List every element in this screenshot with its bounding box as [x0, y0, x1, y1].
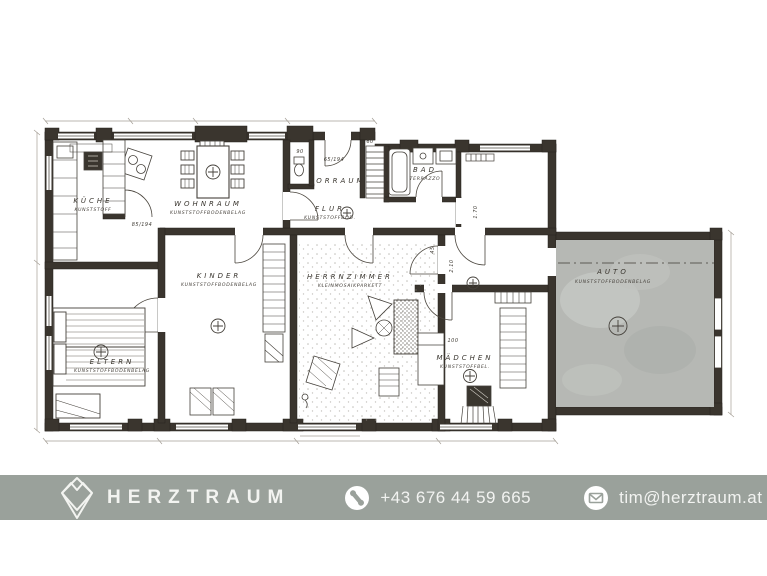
- room-label-vorraum: VORRAUM: [309, 177, 366, 185]
- room-label-kinder: KINDER: [197, 272, 242, 280]
- brand-name: HERZTRAUM: [107, 487, 290, 509]
- curtain: [461, 406, 496, 424]
- wc-fixtures: [294, 157, 304, 176]
- brand: HERZTRAUM: [60, 476, 290, 520]
- dim-room-height: 1.70: [473, 205, 479, 218]
- wardrobe: [263, 244, 285, 332]
- radiator: [379, 368, 399, 396]
- room-material-kinder: KUNSTSTOFFBODENBELAG: [181, 282, 257, 288]
- kinder-furniture: [190, 244, 285, 415]
- fireplace: [394, 300, 418, 354]
- room-label-wohnraum: WOHNRAUM: [174, 200, 242, 208]
- email-icon: [583, 485, 609, 511]
- phone-number: +43 676 44 59 665: [380, 488, 531, 508]
- ceiling-light-icon: [94, 345, 108, 359]
- phone-icon: [344, 485, 370, 511]
- footer-bar: HERZTRAUM +43 676 44 59 665 tim@herztrau…: [0, 475, 767, 520]
- room-material-maedchen: KUNSTSTOFFBEL.: [440, 364, 490, 370]
- room-label-eltern: ELTERN: [90, 358, 135, 366]
- washer: [436, 148, 456, 164]
- dining-group: [181, 141, 244, 198]
- email-contact: tim@herztraum.at: [583, 485, 762, 511]
- room-material-herrnzimmer: KLEINMOSAIKPARKETT: [318, 283, 383, 289]
- email-address: tim@herztraum.at: [619, 488, 762, 508]
- room-material-bad: TERRAZZO: [410, 176, 441, 182]
- dim-corridor-height: 2.10: [449, 259, 455, 272]
- dim-maedchen-width: 100: [447, 338, 458, 344]
- room-material-auto: KUNSTSTOFFBODENBELAG: [575, 279, 651, 285]
- brand-logo-diamond-icon: [60, 476, 94, 520]
- room-label-auto: AUTO: [596, 268, 629, 276]
- stairs: [366, 146, 384, 198]
- room-material-eltern: KUNSTSTOFFBODENBELAG: [74, 368, 150, 374]
- room-material-kueche: KUNSTSTOFF: [74, 207, 111, 213]
- page: KÜCHE KUNSTSTOFF WOHNRAUM KUNSTSTOFFBODE…: [0, 0, 767, 576]
- toilet: [295, 164, 304, 176]
- radiator-topright: [466, 154, 494, 161]
- dim-stair-width: 60: [366, 139, 373, 145]
- herrnzimmer-furniture: [299, 242, 437, 422]
- room-label-maedchen: MÄDCHEN: [436, 353, 493, 362]
- room-label-herrnzimmer: HERRNZIMMER: [307, 273, 393, 281]
- room-material-flur: KUNSTSTOFFBOD.: [304, 215, 356, 221]
- dim-door-vorraum: 65/194: [324, 157, 345, 163]
- ceiling-light-icon: [211, 319, 225, 333]
- wardrobe: [56, 394, 100, 418]
- dim-wc-width: 90: [296, 149, 303, 155]
- room-label-flur: FLUR: [315, 205, 345, 213]
- ceiling-light-icon: [464, 370, 477, 383]
- pillow: [54, 344, 66, 374]
- dim-door-kueche: 85/194: [132, 222, 153, 228]
- room-material-wohnraum: KUNSTSTOFFBODENBELAG: [170, 210, 246, 216]
- ceiling-light-icon: [206, 165, 220, 179]
- room-label-kueche: KÜCHE: [73, 196, 112, 205]
- floorplan-drawing: KÜCHE KUNSTSTOFF WOHNRAUM KUNSTSTOFFBODE…: [0, 0, 767, 470]
- dim-flur-height: 45: [430, 246, 436, 253]
- pillow: [54, 312, 66, 342]
- garage: [556, 240, 714, 407]
- phone-contact: +43 676 44 59 665: [344, 485, 531, 511]
- washbasin: [413, 148, 433, 164]
- room-label-bad: BAD: [413, 166, 437, 174]
